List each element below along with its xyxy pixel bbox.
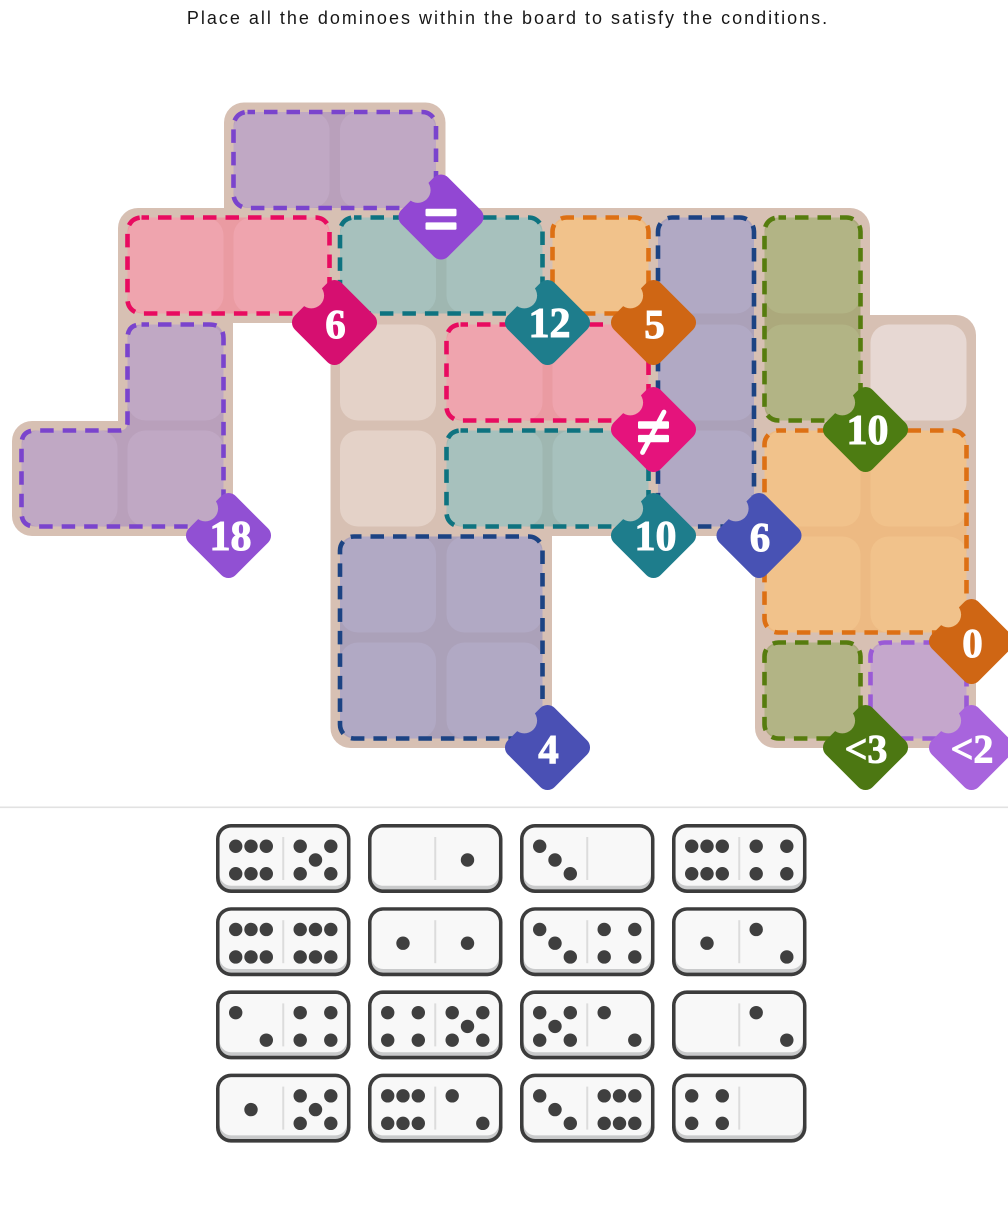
svg-text:12: 12 [529, 301, 571, 347]
svg-text:6: 6 [325, 301, 346, 347]
svg-text:<3: <3 [845, 727, 888, 772]
svg-text:5: 5 [644, 301, 665, 347]
svg-text:6: 6 [750, 514, 771, 560]
svg-text:18: 18 [210, 514, 252, 560]
svg-text:<2: <2 [951, 727, 994, 772]
svg-text:4: 4 [538, 726, 559, 772]
svg-text:10: 10 [635, 514, 677, 560]
svg-text:0: 0 [962, 620, 983, 666]
svg-text:Place all the dominoes within: Place all the dominoes within the board … [187, 8, 829, 28]
svg-text:10: 10 [847, 408, 889, 454]
